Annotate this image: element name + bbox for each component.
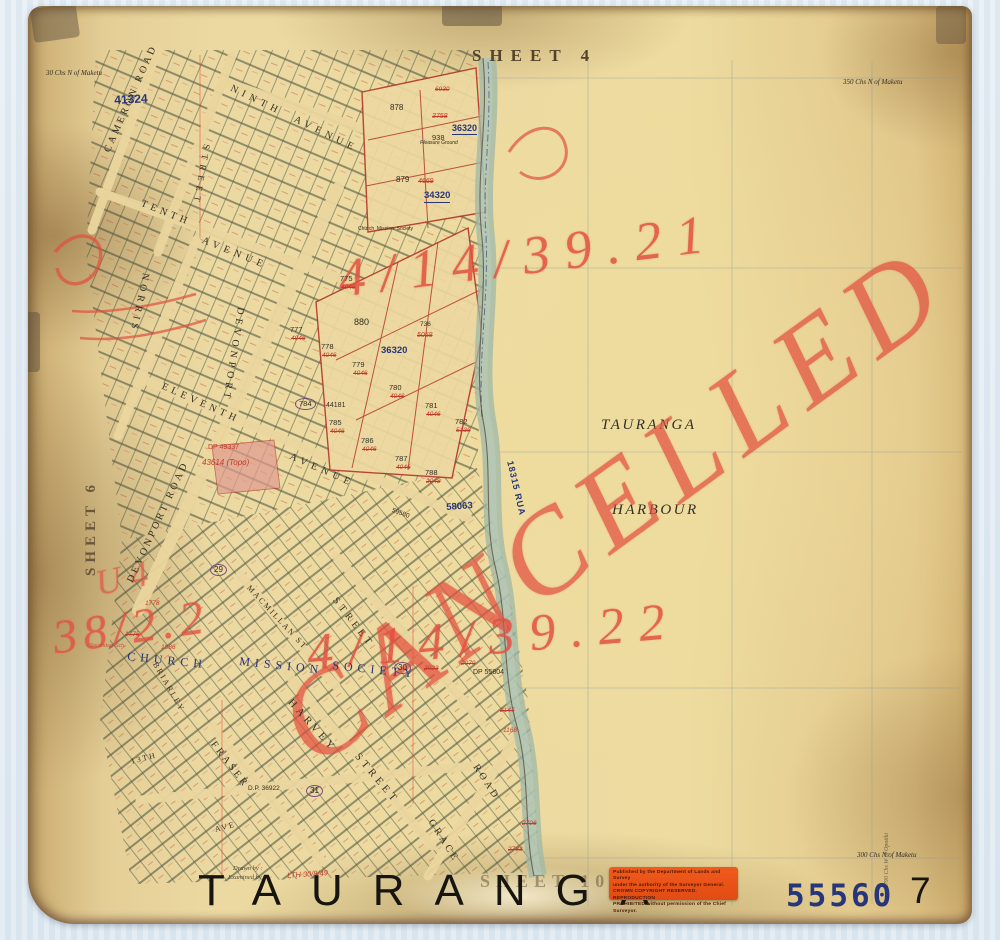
plan-number-36320-mid: 36320	[381, 346, 407, 356]
lot-781: 781	[425, 402, 438, 410]
red-4046-775: 4046	[341, 285, 355, 292]
plan-number-59580: 59580	[391, 508, 410, 520]
lot-777: 777	[290, 326, 303, 334]
lot-788: 788	[425, 469, 438, 477]
lot-786: 786	[361, 437, 374, 445]
red-4046-781: 4046	[426, 412, 440, 419]
plan-number-41324: 41324	[114, 92, 148, 106]
map-sheet: SHEET 4SHEET 6SHEET 10TAURANGAHARBOURTAU…	[28, 6, 972, 924]
lot-736: 736	[420, 322, 431, 329]
red-2783: 2783	[508, 847, 522, 854]
plan-number-dp49337: DP 49337	[208, 444, 239, 451]
red-4046-786: 4046	[362, 447, 376, 454]
drawn-by-note: Drawn by :	[233, 866, 263, 873]
tape-fragment-left-edge	[28, 312, 40, 372]
lot-878: 878	[390, 104, 403, 112]
lot-880: 880	[354, 318, 369, 327]
red-1168: 1168	[503, 728, 517, 735]
street-label-devonport-north: DEVONPORT	[220, 306, 245, 402]
tape-fragment-top-center	[442, 6, 502, 26]
circled-29: 29	[210, 564, 227, 576]
street-label-briarley: BRIARLEY	[151, 661, 186, 713]
plan-number-34320: 34320	[424, 191, 450, 203]
record-number-stamp: 55560	[786, 881, 894, 912]
red-2048: 2048	[426, 479, 440, 486]
red-4046-779: 4046	[353, 371, 367, 378]
lot-778: 778	[321, 343, 334, 351]
copyright-label: Published by the Department of Lands and…	[609, 867, 738, 900]
examined-by-note: Examined by :	[228, 875, 266, 882]
copyright-line-4: PROHIBITED without permission of the Chi…	[613, 902, 734, 915]
red-2706: 2706	[522, 821, 536, 828]
tape-fragment-top-left	[30, 6, 80, 43]
street-label-ninth-avenue: NINTH AVENUE	[229, 84, 360, 155]
lot-44181: 44181	[326, 402, 345, 409]
margin-note-top-right: 350 Chs N of Maketu	[843, 79, 903, 86]
street-label-harvey-street: STREET	[352, 752, 400, 807]
red-3758: 3758	[432, 113, 448, 120]
street-label-fraser: FRASER	[208, 740, 250, 790]
plan-number-dp36922: D.P. 36922	[248, 786, 280, 793]
copyright-line-3: CROWN COPYRIGHT RESERVED. REPRODUCTION	[613, 889, 734, 902]
sheet-4-label: SHEET 4	[472, 47, 597, 64]
red-4046-785: 4046	[330, 429, 344, 436]
cancelled-annotation: CANCELLED	[258, 223, 970, 786]
sheet-number: 7	[910, 872, 931, 909]
plan-number-dp55804: DP 55804	[473, 669, 504, 676]
circled-30: 30	[394, 662, 411, 674]
estate-label-church: CHURCH	[127, 650, 208, 670]
street-label-devonport-road: DEVONPORT ROAD	[126, 460, 191, 584]
red-4669: 4669	[418, 178, 434, 185]
red-4046-780: 4046	[390, 394, 404, 401]
red-1778: 1778	[145, 601, 159, 608]
street-label-ave: AVE	[214, 821, 237, 834]
file-ref-top: 4/14/39.21	[335, 205, 721, 305]
bottom-title: TAURANGA	[198, 869, 679, 913]
street-label-street-north: STREET	[191, 143, 211, 207]
street-label-tenth: TENTH	[139, 199, 192, 228]
red-2079: 2079	[461, 661, 475, 668]
scan-background: SHEET 4SHEET 6SHEET 10TAURANGAHARBOURTAU…	[0, 0, 1000, 940]
red-4046-778: 4046	[322, 353, 336, 360]
lot-775: 775	[340, 275, 353, 283]
lot-779: 779	[352, 361, 365, 369]
street-label-grace-road: ROAD	[471, 763, 501, 802]
copyright-line-1: Published by the Department of Lands and…	[613, 870, 734, 883]
lot-782: 782	[455, 418, 468, 426]
red-4046-787: 4046	[396, 465, 410, 472]
street-label-thirteenth: 13TH	[130, 752, 158, 766]
note-pleasure-ground: Pleasure Ground	[420, 141, 458, 146]
note-secondary-sch: Secondary Sch.	[90, 644, 125, 649]
street-label-norris: NORRIS	[128, 272, 150, 333]
lot-784: 784	[295, 398, 316, 410]
red-6930: 6930	[435, 87, 449, 94]
plan-number-58063: 58063	[446, 501, 473, 512]
circled-31: 31	[306, 785, 323, 797]
street-label-eleventh-avenue: AVENUE	[288, 452, 356, 490]
lot-785: 785	[329, 419, 342, 427]
lot-787: 787	[395, 455, 408, 463]
lot-780: 780	[389, 384, 402, 392]
plan-number-43614-topo: 43614 (Topo)	[202, 459, 249, 467]
street-label-tenth-avenue: AVENUE	[200, 236, 268, 271]
red-4046-777: 4046	[291, 336, 305, 343]
red-5136: 5136	[456, 428, 470, 435]
red-2023: 2023	[424, 666, 438, 673]
margin-note-right-edge: 1790 Chs W of Opotiki	[884, 833, 890, 888]
red-1775: 1775	[125, 632, 139, 639]
lot-879: 879	[396, 176, 409, 184]
sheet-6-label: SHEET 6	[84, 480, 99, 576]
red-5058: 5058	[417, 332, 433, 339]
tape-fragment-top-right	[936, 6, 966, 44]
note-church-mission: Church Mission Society	[358, 227, 413, 232]
plan-number-36320-north: 36320	[452, 124, 477, 135]
margin-note-top-left: 30 Chs N of Maketu	[46, 70, 102, 77]
street-label-macmillan: MACMILLAN ST	[245, 584, 309, 651]
red-1886: 1886	[161, 645, 175, 652]
map-label-layer: SHEET 4SHEET 6SHEET 10TAURANGAHARBOURTAU…	[28, 6, 972, 924]
street-label-grace: GRACE	[426, 818, 461, 864]
red-2147: 2147	[500, 708, 514, 715]
